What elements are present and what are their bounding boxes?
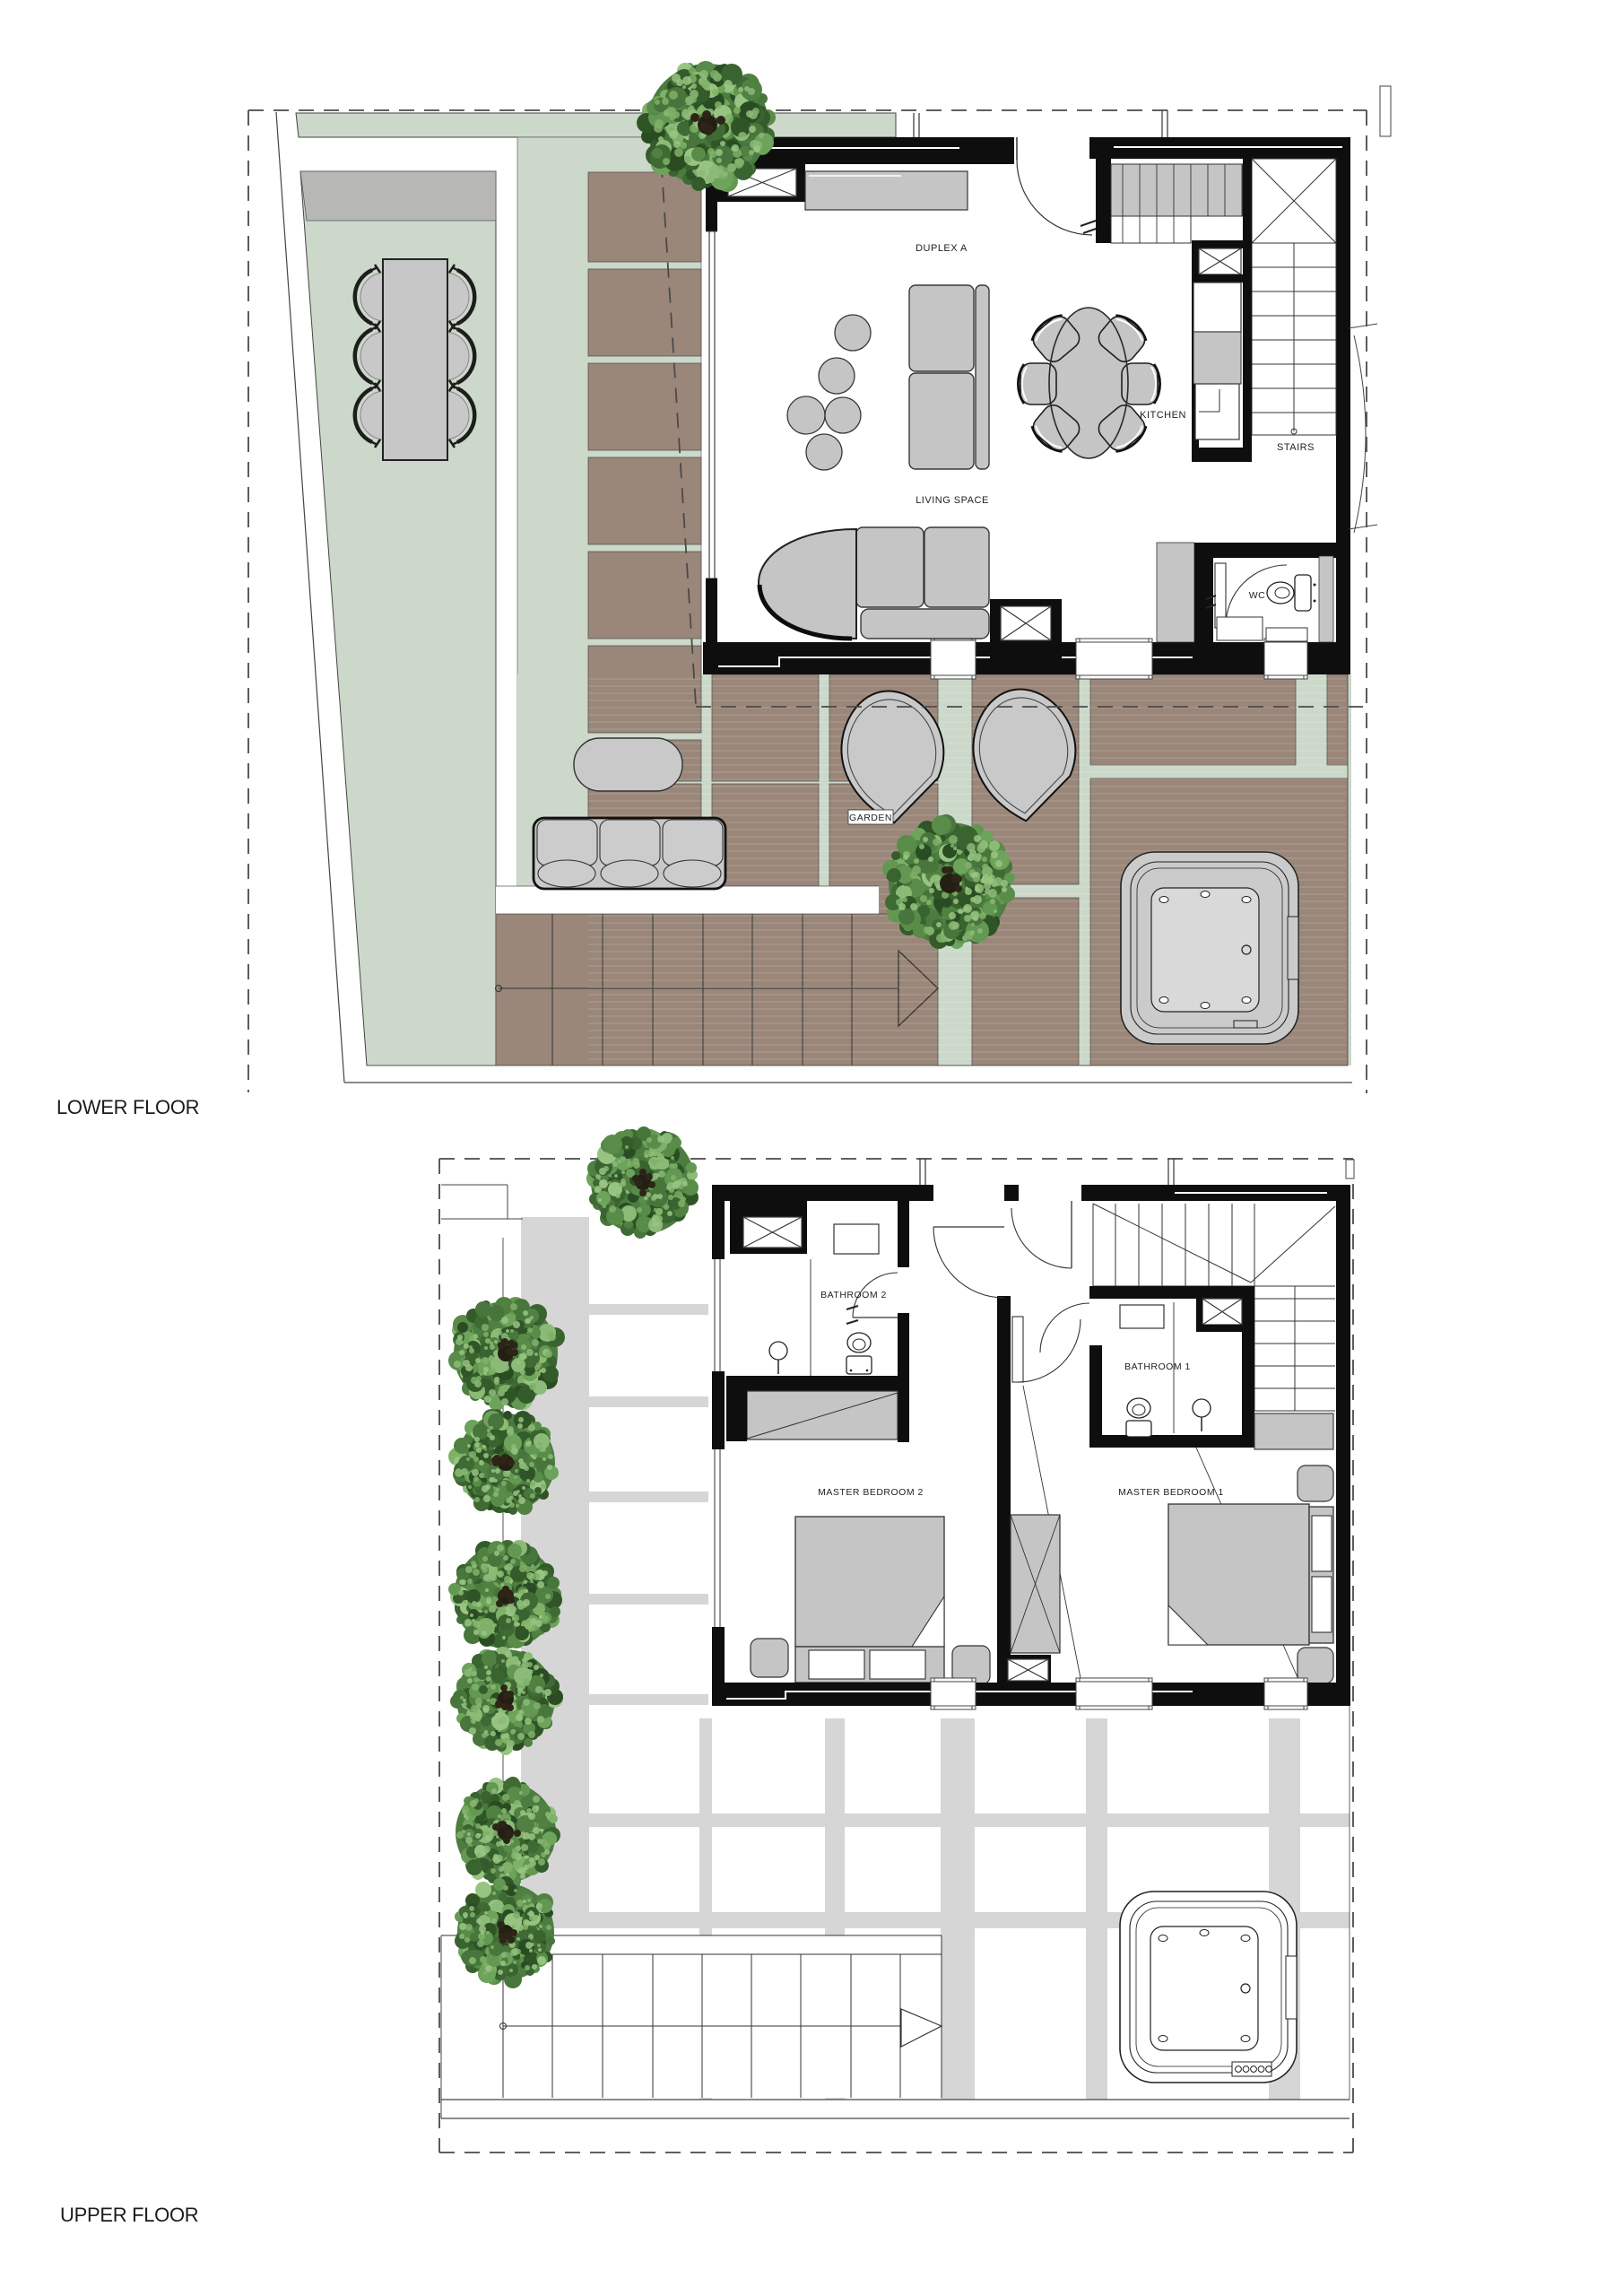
svg-text:BATHROOM 1: BATHROOM 1 bbox=[1124, 1361, 1191, 1372]
svg-text:BATHROOM 2: BATHROOM 2 bbox=[820, 1290, 887, 1300]
svg-text:LIVING SPACE: LIVING SPACE bbox=[916, 495, 989, 506]
svg-text:MASTER BEDROOM 1: MASTER BEDROOM 1 bbox=[1118, 1487, 1224, 1498]
svg-text:KITCHEN: KITCHEN bbox=[1140, 410, 1186, 421]
svg-text:MASTER BEDROOM 2: MASTER BEDROOM 2 bbox=[818, 1487, 924, 1498]
svg-text:GARDEN: GARDEN bbox=[849, 813, 892, 823]
svg-text:DUPLEX A: DUPLEX A bbox=[916, 243, 968, 254]
svg-text:LOWER FLOOR: LOWER FLOOR bbox=[56, 1096, 199, 1118]
svg-text:STAIRS: STAIRS bbox=[1277, 442, 1315, 453]
svg-text:UPPER FLOOR: UPPER FLOOR bbox=[60, 2204, 198, 2226]
svg-text:WC: WC bbox=[1249, 590, 1266, 601]
